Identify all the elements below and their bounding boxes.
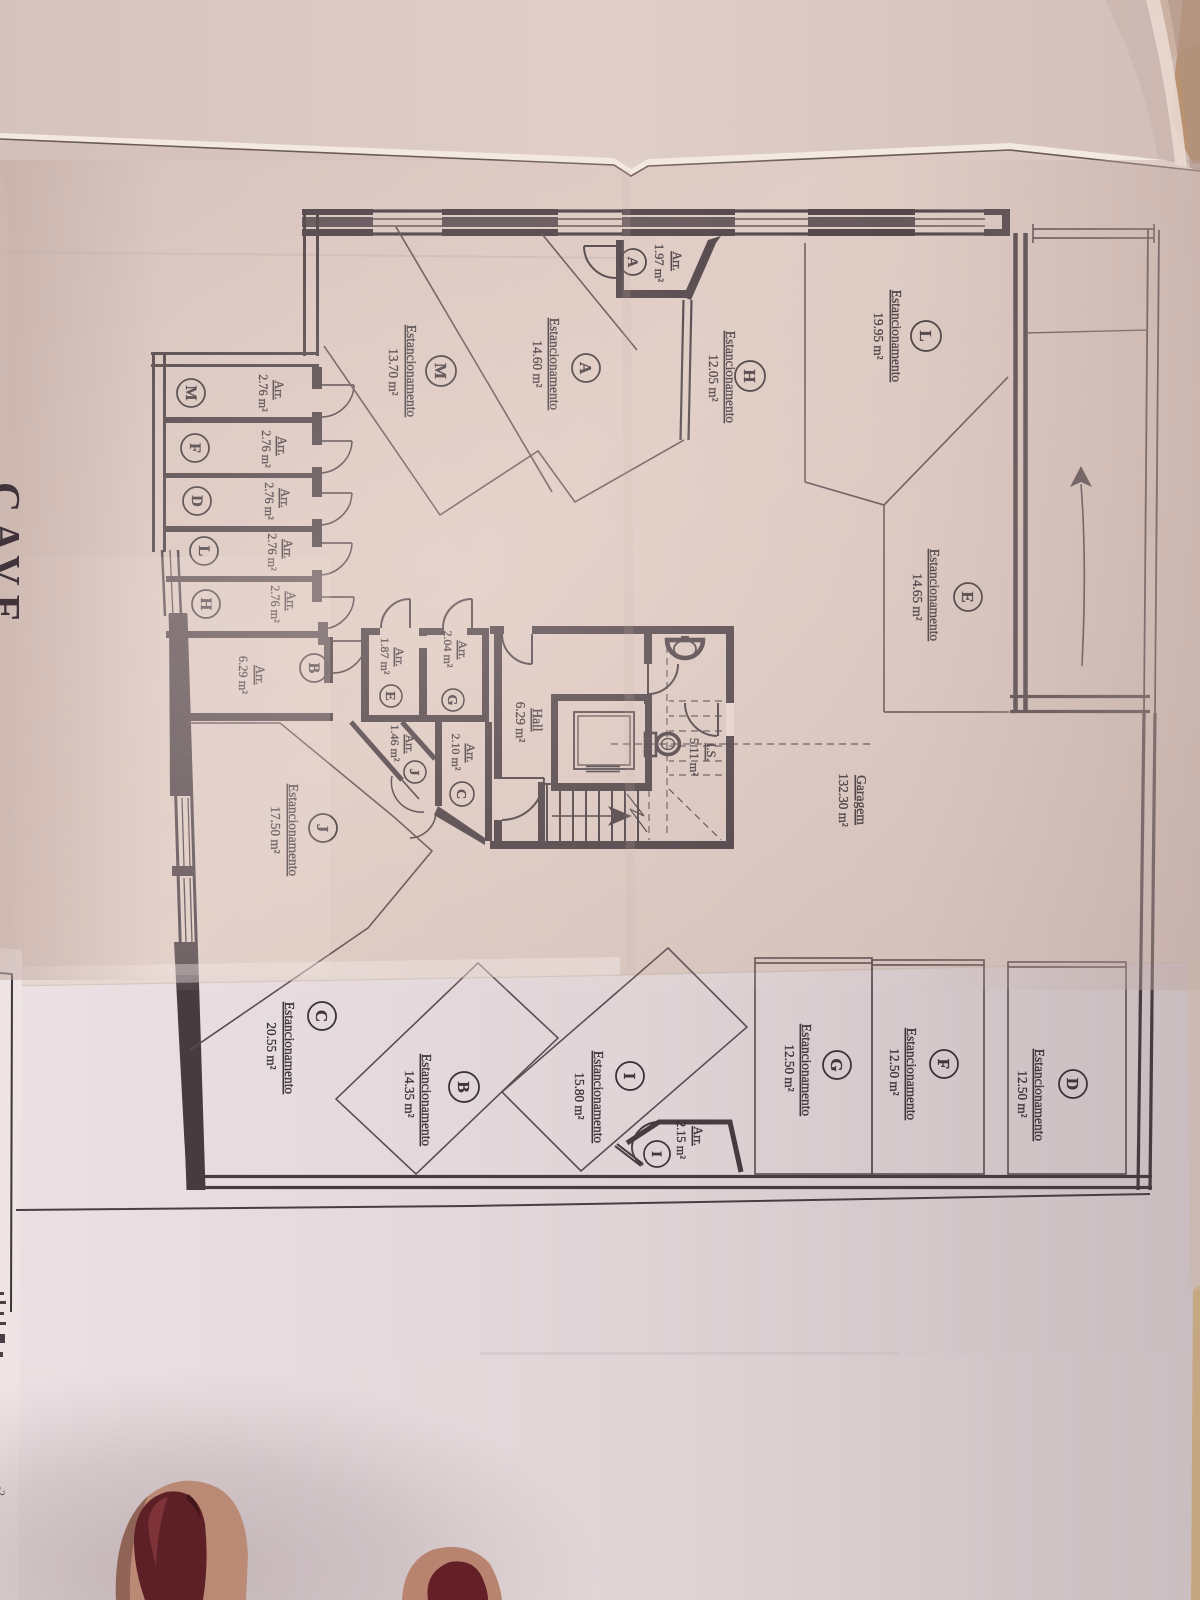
svg-text:15.80 m²: 15.80 m² [572,1072,587,1119]
svg-text:C: C [312,1010,331,1022]
svg-text:B: B [454,1081,473,1092]
svg-text:Estancionamento: Estancionamento [419,1054,434,1147]
svg-text:Estancionamento: Estancionamento [282,1002,297,1095]
svg-text:Estancionamento: Estancionamento [591,1051,606,1144]
svg-text:Estancionamento: Estancionamento [1032,1049,1047,1142]
svg-text:CAVE: CAVE [0,482,27,632]
svg-text:I: I [620,1073,639,1080]
svg-text:Arr.: Arr. [691,1126,705,1146]
svg-text:I: I [648,1151,664,1157]
svg-text:Estancionamento: Estancionamento [904,1028,919,1121]
svg-text:20.55 m²: 20.55 m² [264,1022,279,1069]
svg-text:14.35 m²: 14.35 m² [402,1070,417,1117]
svg-text:12.50 m²: 12.50 m² [782,1044,797,1091]
svg-text:F: F [934,1059,953,1069]
svg-text:G: G [827,1058,846,1071]
svg-text:12.50 m²: 12.50 m² [887,1048,902,1095]
svg-text:D: D [1063,1078,1082,1090]
svg-text:12.50 m²: 12.50 m² [1015,1070,1030,1117]
svg-text:Estancionamento: Estancionamento [799,1024,814,1117]
svg-text:2.15 m²: 2.15 m² [674,1121,688,1159]
